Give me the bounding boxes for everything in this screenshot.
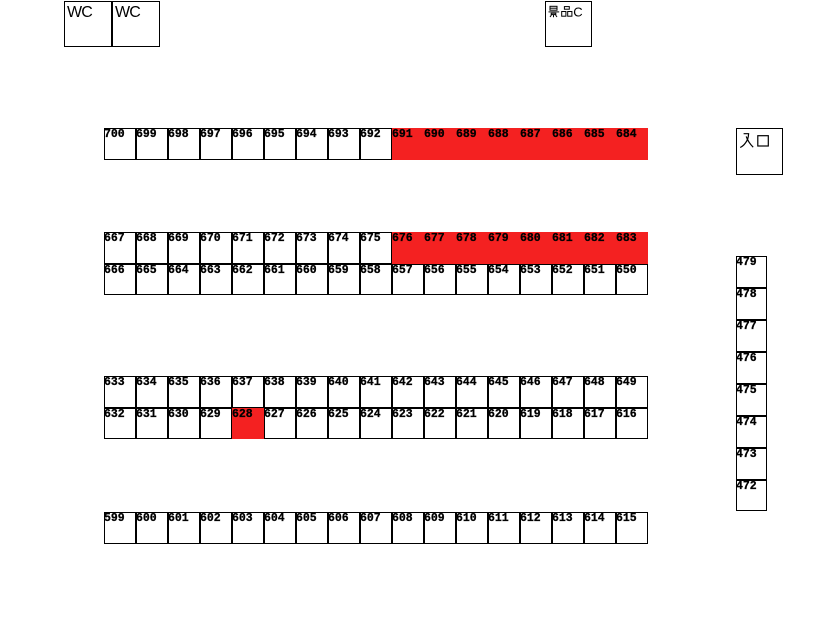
svg-text:C: C xyxy=(573,5,582,18)
